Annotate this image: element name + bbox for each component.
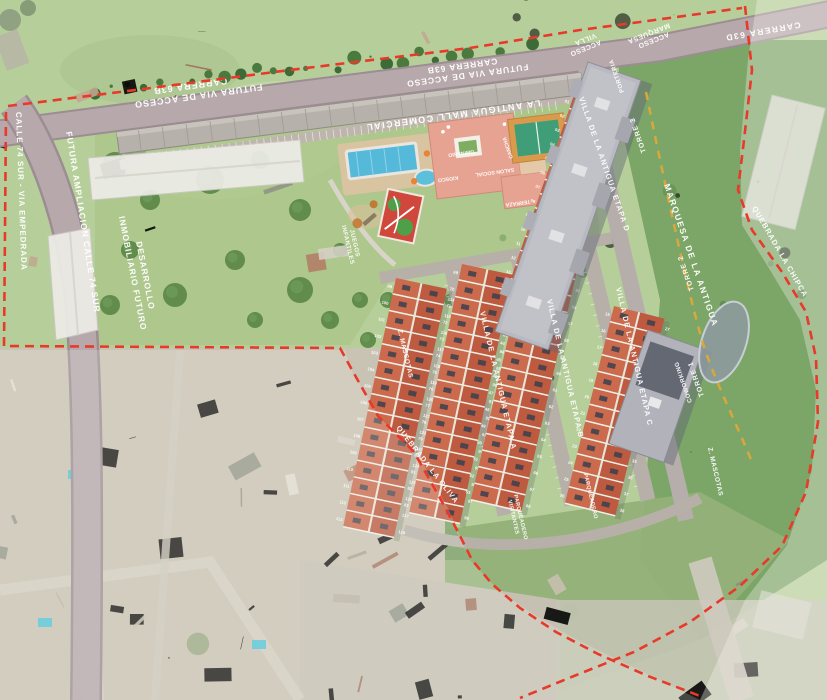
site-plan-map: 9911410011510111610211710311810411910512… [0,0,827,700]
aerial-site-plan: 9911410011510111610211710311810411910512… [0,0,827,700]
